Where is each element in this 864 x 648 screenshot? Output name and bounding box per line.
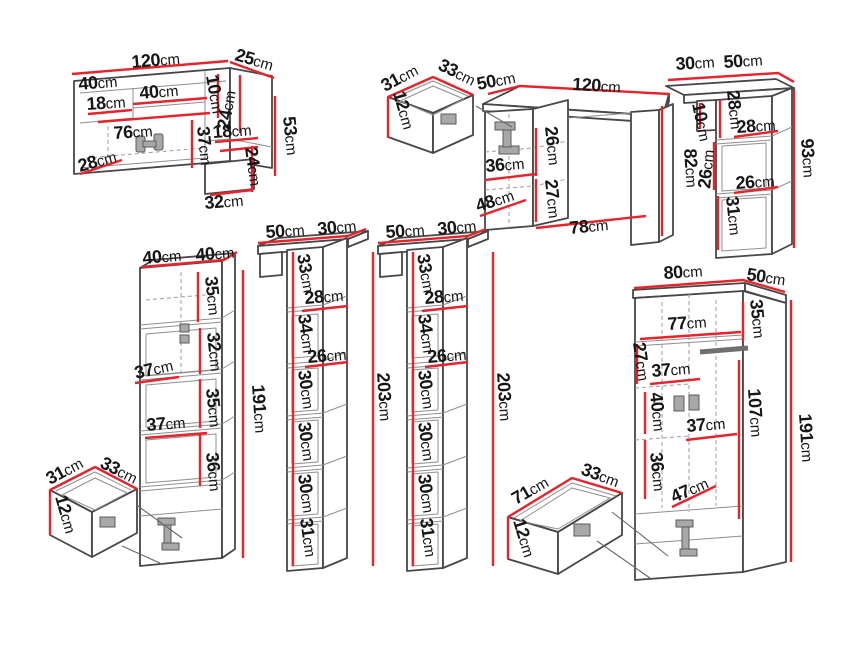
drawer-box-wide: 71cm 33cm 12cm <box>508 459 622 574</box>
dim-col2-depth: 30cm <box>436 215 477 239</box>
dim-wardrobe-interior-height: 107cm <box>744 388 767 438</box>
desk-right-panel <box>631 110 659 245</box>
drawer-box-small-2: 31cm 33cm 12cm <box>42 453 141 557</box>
dim-column-total-height: 93cm <box>797 138 820 178</box>
drawer-box-small-1: 31cm 33cm 12cm <box>377 55 479 153</box>
handle-icon <box>676 520 693 527</box>
dim-cabinet-depth: 40cm <box>195 242 236 265</box>
dim-drawer1-depth: 31cm <box>377 60 421 96</box>
dim-col1-depth: 30cm <box>316 215 357 239</box>
handle-icon <box>158 518 175 525</box>
handle-icon <box>143 141 156 147</box>
dim-cabinet-total-height: 191cm <box>248 384 271 434</box>
diagram-canvas: 120cm 25cm 40cm 18cm 40cm 10cm 24cm 76cm… <box>0 0 864 648</box>
handle-icon <box>674 396 684 411</box>
dim-cabinet-width: 40cm <box>142 245 183 268</box>
dim-wall-shelf-left-opening-height: 18cm <box>86 91 126 114</box>
wall-shelf-unit: 120cm 25cm 40cm 18cm 40cm 10cm 24cm 76cm… <box>72 45 303 213</box>
dim-col1-total-height: 203cm <box>373 372 396 422</box>
shelf-column-2: 50cm 30cm 33cm 28cm 34cm 26cm 30cm 30cm … <box>378 215 516 571</box>
dim-wall-shelf-total-height: 53cm <box>279 115 303 156</box>
slab-flap <box>380 252 402 277</box>
dim-col2-total-height: 203cm <box>493 372 516 422</box>
dim-col1-width: 50cm <box>265 219 305 242</box>
handle-icon <box>574 524 590 536</box>
desk: 50cm 120cm 26cm 36cm 27cm 48cm 78cm 82cm <box>473 67 703 245</box>
dim-wall-shelf-interior-width: 76cm <box>113 120 153 143</box>
handle-icon <box>100 517 115 527</box>
handle-icon <box>503 130 511 147</box>
dim-wardrobe-interior-width: 77cm <box>667 311 707 334</box>
handle-icon <box>689 395 699 410</box>
column-side <box>772 88 792 254</box>
handle-icon <box>162 543 179 550</box>
dim-wall-shelf-right-opening-height: 18cm <box>212 119 252 142</box>
dim-column-upper-opening-width: 28cm <box>736 114 776 137</box>
dim-wardrobe-total-height: 191cm <box>795 413 818 463</box>
wardrobe: 80cm 50cm 35cm 77cm 27cm 37cm 40cm 37cm … <box>629 260 818 580</box>
dim-wall-shelf-total-width: 120cm <box>131 48 181 72</box>
dim-desk-legroom-width: 78cm <box>568 214 609 238</box>
handle-icon <box>682 527 689 549</box>
dim-col2-width: 50cm <box>385 219 425 242</box>
slab-flap <box>260 252 282 277</box>
furniture-dimension-diagram: 120cm 25cm 40cm 18cm 40cm 10cm 24cm 76cm… <box>0 0 864 648</box>
dim-column-shelf-depth: 30cm <box>675 51 715 74</box>
dim-column-middle-opening-width: 26cm <box>735 170 775 193</box>
handle-icon <box>180 335 189 343</box>
shelf-column-1: 50cm 30cm 33cm 28cm 34cm 26cm 30cm 30cm … <box>258 215 396 571</box>
handle-icon <box>680 549 697 556</box>
dim-wall-shelf-top-shelf-width: 40cm <box>78 71 119 94</box>
dim-wardrobe-width: 80cm <box>663 260 703 283</box>
dim-column-shelf-width: 50cm <box>723 49 763 72</box>
handle-icon <box>180 324 189 332</box>
handle-icon <box>441 114 456 124</box>
dim-desk-width: 120cm <box>572 74 622 97</box>
